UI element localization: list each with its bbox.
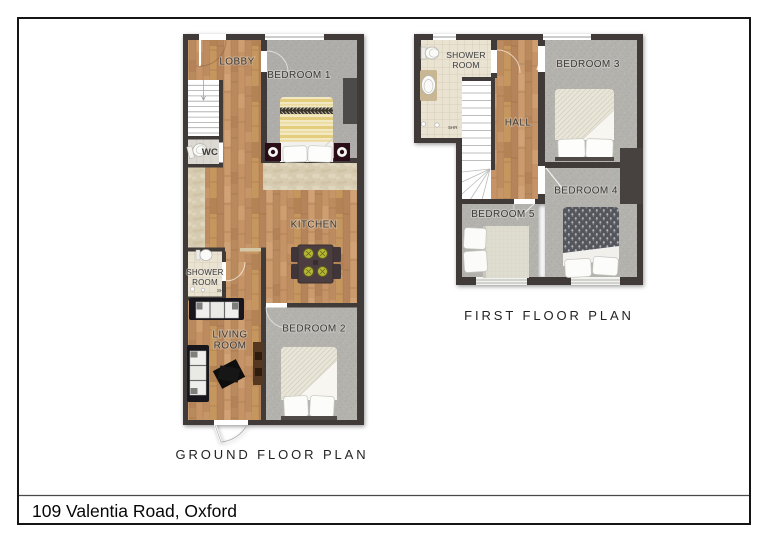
svg-text:KITCHEN: KITCHEN	[291, 220, 338, 231]
svg-text:BEDROOM 5: BEDROOM 5	[471, 209, 535, 220]
svg-text:LIVING: LIVING	[212, 330, 247, 341]
svg-text:SHR: SHR	[217, 288, 227, 293]
svg-text:BEDROOM 2: BEDROOM 2	[282, 324, 346, 335]
svg-text:BEDROOM 1: BEDROOM 1	[267, 70, 331, 81]
svg-text:ROOM: ROOM	[192, 278, 218, 287]
svg-text:LOBBY: LOBBY	[219, 57, 254, 68]
svg-text:ROOM: ROOM	[214, 341, 247, 352]
svg-text:SHOWER: SHOWER	[446, 50, 485, 60]
svg-text:SHR: SHR	[448, 125, 458, 130]
svg-text:WC: WC	[202, 147, 218, 158]
svg-text:BEDROOM 3: BEDROOM 3	[556, 59, 620, 70]
svg-text:FIRST FLOOR PLAN: FIRST FLOOR PLAN	[464, 308, 634, 323]
svg-text:SHOWER: SHOWER	[186, 268, 223, 277]
svg-text:ROOM: ROOM	[452, 60, 479, 70]
svg-text:HALL: HALL	[505, 118, 532, 129]
svg-text:GROUND FLOOR PLAN: GROUND FLOOR PLAN	[175, 447, 368, 462]
svg-text:BEDROOM 4: BEDROOM 4	[554, 186, 618, 197]
svg-text:109 Valentia Road, Oxford: 109 Valentia Road, Oxford	[32, 501, 237, 521]
